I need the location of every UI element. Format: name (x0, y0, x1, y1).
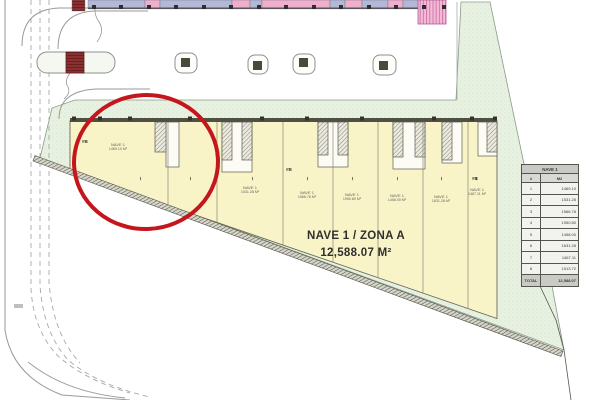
row-area: 1513.72 (541, 263, 579, 275)
row-index: 7 (522, 252, 541, 264)
table-row: 61631.28 (522, 240, 579, 252)
row-index: 5 (522, 229, 541, 241)
zone-area: 12,588.07 M² (286, 245, 426, 262)
door-marker: #B (286, 168, 292, 172)
row-area: 1631.28 (541, 240, 579, 252)
unit-label: NAVE 11469.10 M² (109, 143, 127, 152)
row-index: 4 (522, 217, 541, 229)
table-row: 51458.00 (522, 229, 579, 241)
text-overlay: NAVE 1 / ZONA A 12,588.07 M² NAVE 11469.… (0, 0, 600, 400)
unit-label: NAVE 11467.11 M² (468, 188, 486, 197)
unit-area: 1566.78 M² (298, 195, 316, 199)
unit-area: 1469.10 M² (109, 147, 127, 151)
row-index: 1 (522, 183, 541, 195)
site-plan-canvas: NAVE 1 / ZONA A 12,588.07 M² NAVE 11469.… (0, 0, 600, 400)
unit-label: NAVE 11950.80 M² (343, 193, 361, 202)
unit-label: NAVE 11631.28 M² (432, 195, 450, 204)
table-row: 81513.72 (522, 263, 579, 275)
row-index: 3 (522, 206, 541, 218)
unit-area: 1950.80 M² (343, 197, 361, 201)
table-col-m2: M2 (541, 174, 579, 183)
table-title: NAVE 1 (522, 165, 579, 174)
unit-area: 1531.28 M² (241, 190, 259, 194)
area-summary-table: NAVE 1 # M2 11469.1021531.2831566.784195… (521, 164, 579, 287)
table-total-value: 12,588.07 (541, 275, 579, 287)
row-area: 1469.10 (541, 183, 579, 195)
row-index: 6 (522, 240, 541, 252)
row-area: 1467.11 (541, 252, 579, 264)
table-row: 71467.11 (522, 252, 579, 264)
row-area: 1531.28 (541, 194, 579, 206)
table-row: 41950.80 (522, 217, 579, 229)
row-area: 1566.78 (541, 206, 579, 218)
row-index: 8 (522, 263, 541, 275)
unit-label: NAVE 11458.00 M² (388, 194, 406, 203)
table-total-label: TOTAL (522, 275, 541, 287)
door-marker: #B (82, 140, 88, 144)
unit-label: NAVE 11531.28 M² (241, 186, 259, 195)
unit-label: NAVE 11566.78 M² (298, 191, 316, 200)
table-row: 21531.28 (522, 194, 579, 206)
table-row: 11469.10 (522, 183, 579, 195)
row-area: 1458.00 (541, 229, 579, 241)
unit-area: 1467.11 M² (468, 192, 486, 196)
row-area: 1950.80 (541, 217, 579, 229)
row-index: 2 (522, 194, 541, 206)
unit-area: 1458.00 M² (388, 198, 406, 202)
unit-area: 1631.28 M² (432, 199, 450, 203)
zone-title-label: NAVE 1 / ZONA A 12,588.07 M² (286, 228, 426, 262)
table-row: 31566.78 (522, 206, 579, 218)
table-col-index: # (522, 174, 541, 183)
door-marker: #B (472, 177, 478, 181)
zone-name: NAVE 1 / ZONA A (286, 228, 426, 245)
